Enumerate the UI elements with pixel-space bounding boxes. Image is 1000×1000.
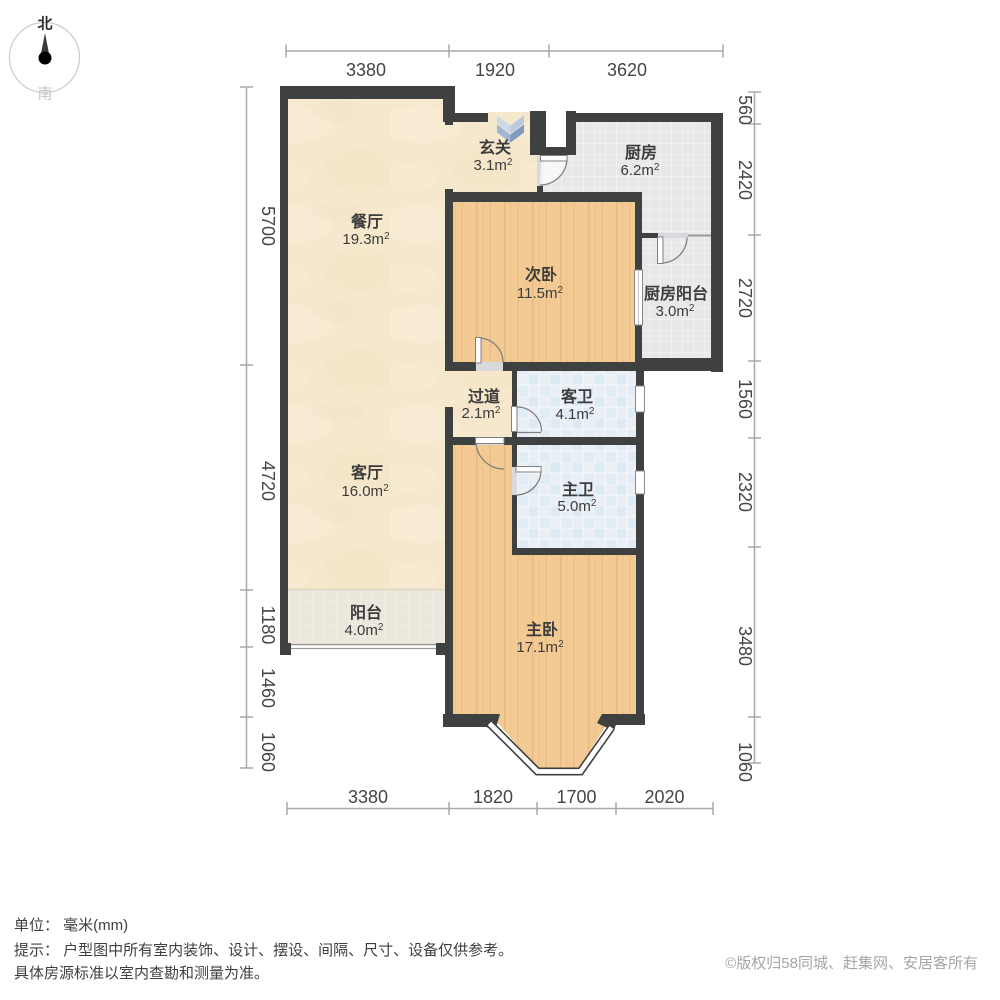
svg-text:3380: 3380 <box>346 60 386 80</box>
svg-text:1060: 1060 <box>735 742 755 782</box>
svg-text:阳台: 阳台 <box>350 603 382 622</box>
svg-text:北: 北 <box>37 16 52 33</box>
svg-text:16.0m2: 16.0m2 <box>341 483 389 500</box>
svg-text:主卧: 主卧 <box>526 620 558 639</box>
svg-text:4720: 4720 <box>258 461 278 501</box>
svg-text:次卧: 次卧 <box>525 265 557 284</box>
svg-text:南: 南 <box>37 86 52 103</box>
svg-text:3480: 3480 <box>735 626 755 666</box>
svg-text:2320: 2320 <box>735 472 755 512</box>
svg-text:2020: 2020 <box>644 787 684 807</box>
svg-text:©版权归58同城、赶集网、安居客所有: ©版权归58同城、赶集网、安居客所有 <box>725 955 978 972</box>
svg-text:厨房阳台: 厨房阳台 <box>644 284 708 303</box>
svg-text:厨房: 厨房 <box>625 143 657 162</box>
svg-text:3380: 3380 <box>348 787 388 807</box>
svg-text:2720: 2720 <box>735 278 755 318</box>
svg-text:具体房源标准以室内查勘和测量为准。: 具体房源标准以室内查勘和测量为准。 <box>14 965 269 982</box>
svg-text:1820: 1820 <box>473 787 513 807</box>
svg-text:过道: 过道 <box>468 387 500 406</box>
svg-text:餐厅: 餐厅 <box>350 212 383 231</box>
svg-text:1060: 1060 <box>258 732 278 772</box>
svg-text:19.3m2: 19.3m2 <box>342 231 390 248</box>
svg-text:1700: 1700 <box>556 787 596 807</box>
svg-text:提示： 户型图中所有室内装饰、设计、摆设、间隔、尺寸、设备仅: 提示： 户型图中所有室内装饰、设计、摆设、间隔、尺寸、设备仅供参考。 <box>14 942 513 959</box>
svg-text:2420: 2420 <box>735 160 755 200</box>
svg-text:主卫: 主卫 <box>562 480 594 499</box>
svg-text:1920: 1920 <box>475 60 515 80</box>
svg-text:5700: 5700 <box>258 206 278 246</box>
svg-text:客厅: 客厅 <box>351 463 383 482</box>
svg-text:3620: 3620 <box>607 60 647 80</box>
svg-text:玄关: 玄关 <box>479 138 511 157</box>
svg-text:1560: 1560 <box>735 379 755 419</box>
svg-text:17.1m2: 17.1m2 <box>516 639 564 656</box>
svg-text:560: 560 <box>735 95 755 125</box>
svg-text:11.5m2: 11.5m2 <box>517 285 564 302</box>
svg-text:1180: 1180 <box>258 606 278 645</box>
svg-text:客卫: 客卫 <box>561 387 593 406</box>
svg-text:单位： 毫米(mm): 单位： 毫米(mm) <box>14 916 128 934</box>
svg-text:1460: 1460 <box>258 668 278 708</box>
